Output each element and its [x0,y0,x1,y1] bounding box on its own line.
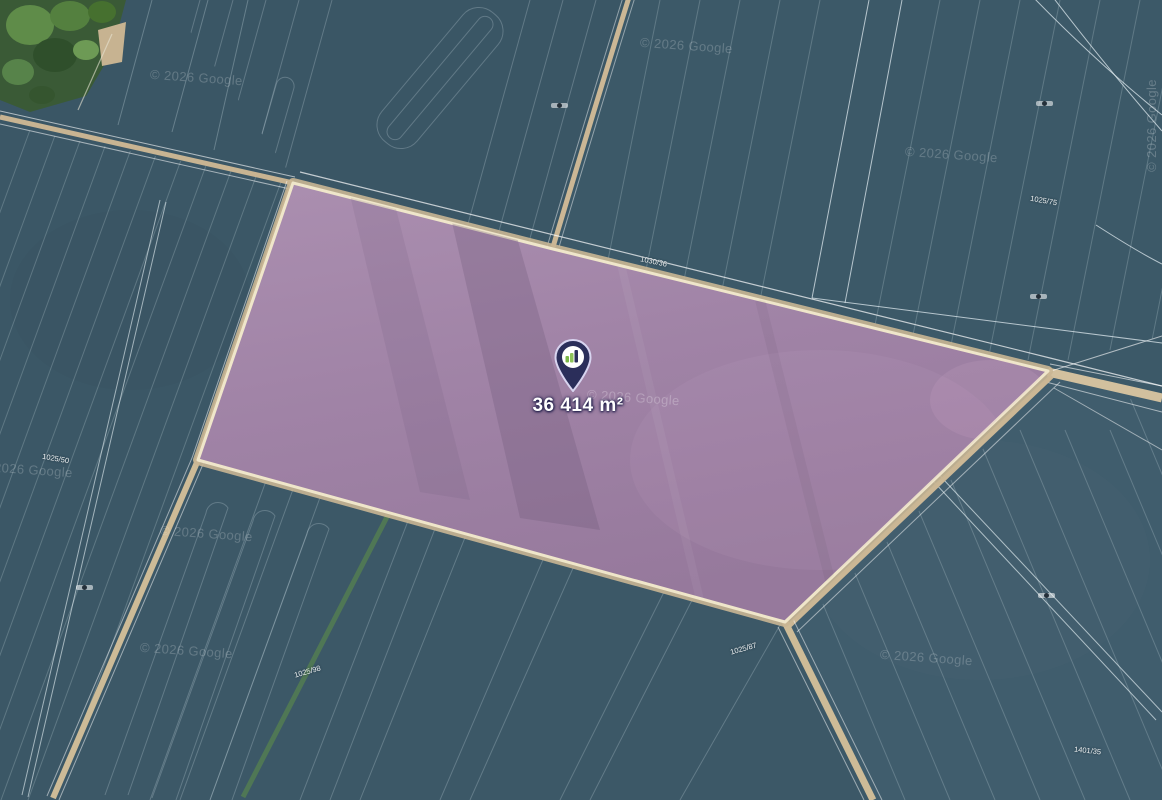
satellite-map-viewport[interactable]: © 2026 Google © 2026 Google © 2026 Googl… [0,0,1162,800]
parcel-area-label: 36 414 m² [490,395,666,417]
tiny-parcel-marker-icon [76,585,93,590]
tiny-parcel-marker-icon [1036,101,1053,106]
tiny-parcel-marker-icon [1030,294,1047,299]
location-pin[interactable] [553,338,593,392]
location-pin-icon [553,338,593,392]
tiny-parcel-marker-icon [1038,593,1055,598]
tiny-parcel-marker-icon [551,103,568,108]
